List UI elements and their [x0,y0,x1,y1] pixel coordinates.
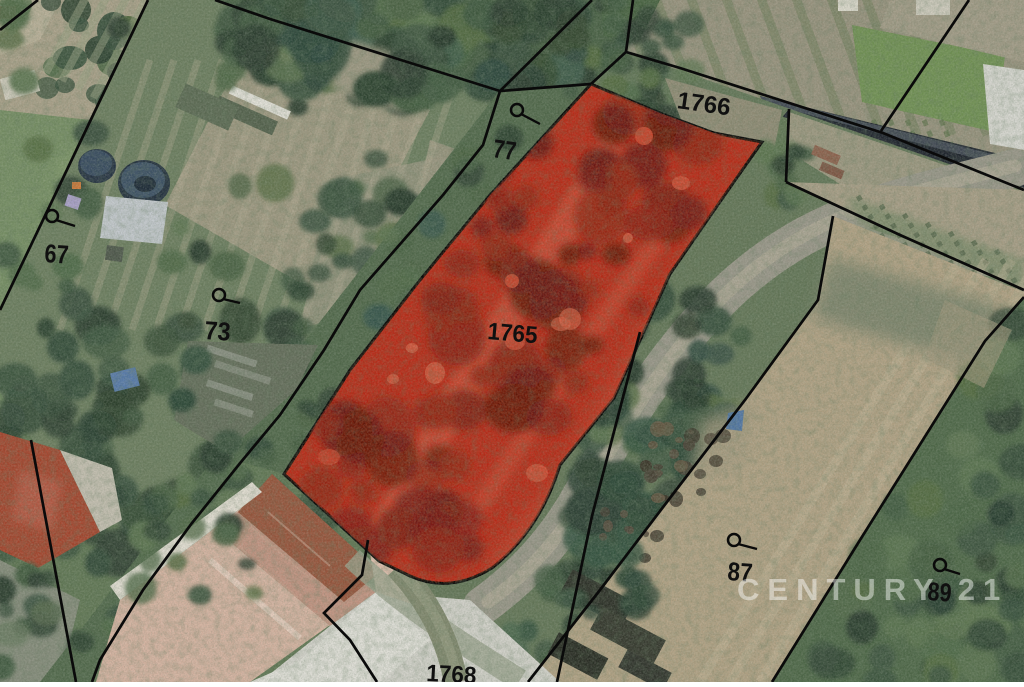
svg-text:73: 73 [204,315,232,347]
svg-text:67: 67 [44,238,70,270]
svg-text:1768: 1768 [426,660,477,682]
svg-text:CENTURY 21: CENTURY 21 [737,572,1008,607]
svg-text:1765: 1765 [486,318,538,349]
svg-text:77: 77 [491,133,518,166]
